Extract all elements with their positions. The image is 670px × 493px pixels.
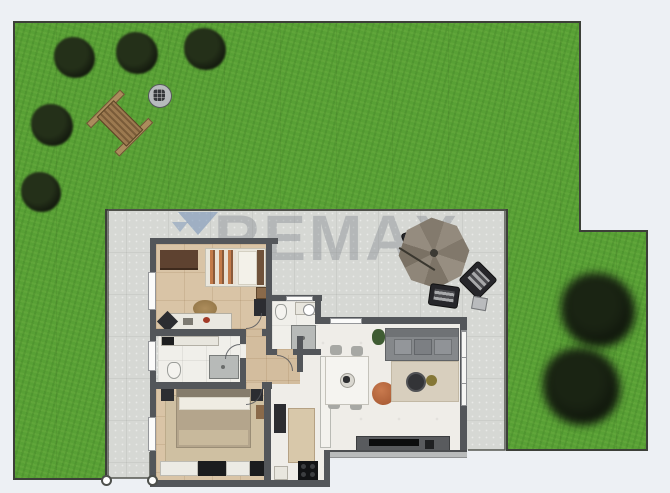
sliding-glass-door [461, 330, 467, 406]
window [286, 296, 313, 301]
kitchen-sink-cabinet [274, 466, 288, 480]
kitchen-island [288, 408, 315, 463]
dining-chair [351, 346, 363, 356]
double-bed [176, 388, 251, 448]
stove [298, 461, 318, 480]
window [148, 272, 156, 310]
dining-table [325, 356, 369, 405]
door-opening [246, 329, 262, 336]
fridge [274, 404, 286, 433]
toilet [275, 304, 287, 320]
wall [150, 238, 278, 244]
wall [266, 301, 272, 355]
wall [150, 480, 330, 487]
shower [291, 325, 316, 351]
window [330, 318, 362, 324]
gate-post [147, 475, 158, 486]
toilet [167, 362, 181, 379]
plant-icon [372, 329, 385, 345]
bed [205, 248, 266, 287]
sofa [385, 328, 459, 361]
dining-chair [330, 345, 342, 355]
gate-post [101, 475, 112, 486]
wall [264, 382, 271, 487]
wall [297, 336, 303, 372]
side-table [471, 296, 488, 311]
wall [266, 238, 272, 301]
window [148, 341, 156, 371]
window [148, 417, 156, 451]
door-opening [246, 382, 262, 389]
house [0, 0, 670, 493]
nightstand [161, 389, 174, 401]
basin [162, 337, 174, 345]
floor-plan-canvas: REMAX [0, 0, 670, 493]
sink [303, 304, 315, 316]
wall [330, 450, 467, 458]
wardrobe [160, 461, 265, 476]
wardrobe [160, 250, 198, 270]
door-opening [240, 344, 246, 358]
living-rug [391, 361, 459, 402]
door-opening [277, 349, 293, 355]
lounge-chair [428, 283, 461, 309]
